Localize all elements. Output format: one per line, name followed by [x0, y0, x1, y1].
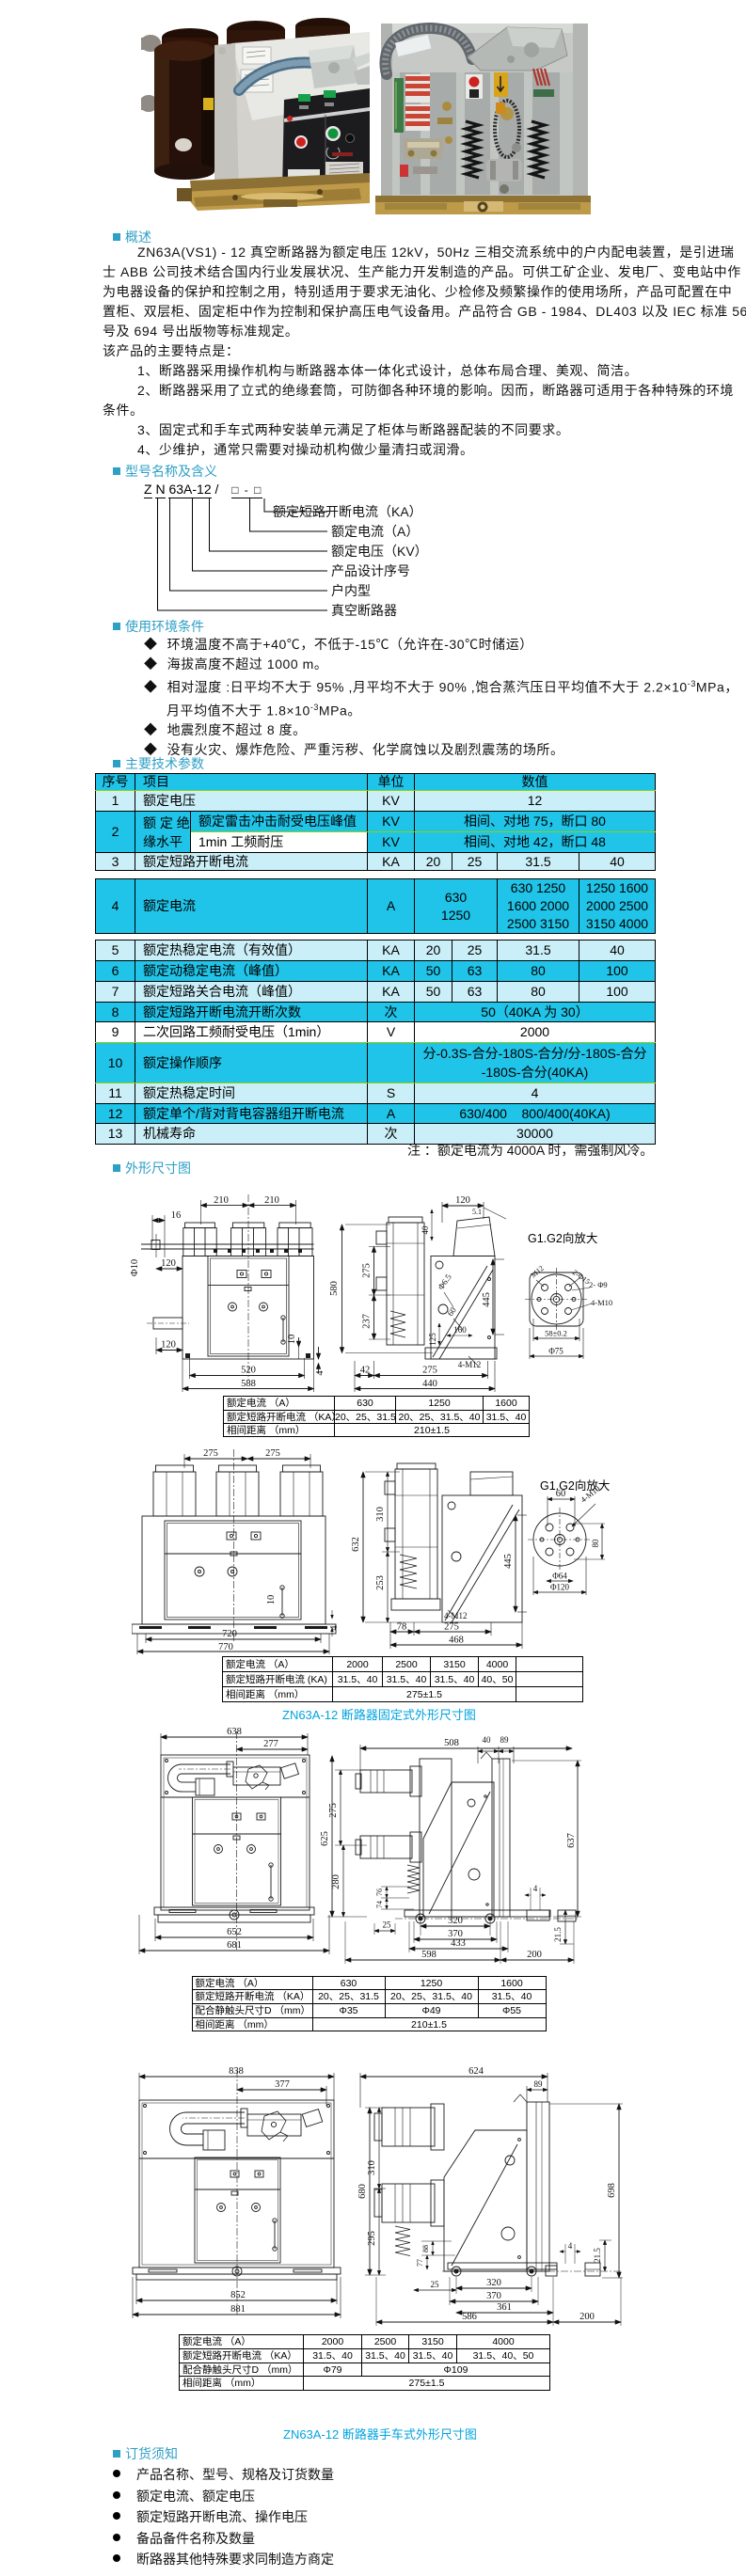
svg-text:445: 445 — [503, 1554, 514, 1569]
svg-text:295: 295 — [367, 2231, 377, 2246]
svg-text:520: 520 — [241, 1366, 256, 1376]
svg-text:Φ120: Φ120 — [550, 1583, 570, 1592]
svg-text:680: 680 — [357, 2184, 368, 2199]
svg-text:74: 74 — [375, 1901, 384, 1908]
svg-text:58±0.2: 58±0.2 — [545, 1329, 567, 1338]
svg-text:4-M12: 4-M12 — [444, 1611, 468, 1620]
svg-text:Φ64: Φ64 — [552, 1572, 567, 1581]
svg-text:838: 838 — [229, 2066, 244, 2077]
svg-text:200: 200 — [579, 2312, 595, 2322]
svg-text:200: 200 — [527, 1950, 542, 1960]
svg-text:588: 588 — [241, 1379, 256, 1389]
svg-text:89: 89 — [500, 1735, 510, 1745]
svg-text:310: 310 — [367, 2160, 377, 2175]
svg-text:275: 275 — [362, 1263, 373, 1278]
svg-text:320: 320 — [448, 1916, 463, 1926]
svg-text:120: 120 — [161, 1340, 176, 1351]
svg-text:580: 580 — [329, 1281, 340, 1296]
svg-text:253: 253 — [375, 1575, 386, 1590]
svg-text:277: 277 — [263, 1739, 278, 1749]
svg-text:120: 120 — [161, 1258, 176, 1269]
svg-text:280: 280 — [331, 1874, 341, 1889]
svg-text:638: 638 — [227, 1727, 242, 1737]
svg-text:625: 625 — [320, 1831, 330, 1846]
svg-text:433: 433 — [451, 1938, 466, 1949]
svg-text:598: 598 — [421, 1950, 436, 1960]
svg-text:89: 89 — [534, 2079, 544, 2089]
svg-text:2- Φ9: 2- Φ9 — [589, 1280, 608, 1289]
svg-text:440: 440 — [422, 1379, 437, 1389]
svg-text:210: 210 — [214, 1195, 229, 1206]
svg-text:852: 852 — [230, 2290, 246, 2300]
svg-text:468: 468 — [449, 1636, 464, 1646]
svg-text:10: 10 — [287, 1335, 297, 1345]
svg-text:25: 25 — [383, 1920, 392, 1930]
svg-text:42: 42 — [360, 1366, 371, 1376]
svg-text:5.1: 5.1 — [472, 1208, 482, 1216]
svg-text:310: 310 — [375, 1507, 386, 1522]
svg-text:4: 4 — [315, 1370, 325, 1376]
svg-text:4-M10: 4-M10 — [591, 1298, 612, 1307]
svg-text:275: 275 — [328, 1803, 339, 1818]
svg-text:637: 637 — [566, 1833, 577, 1848]
svg-text:160: 160 — [453, 1325, 467, 1335]
svg-text:4: 4 — [568, 2241, 573, 2251]
svg-text:76: 76 — [375, 1889, 384, 1896]
svg-text:698: 698 — [607, 2183, 617, 2198]
svg-text:652: 652 — [227, 1927, 242, 1937]
svg-text:624: 624 — [468, 2066, 484, 2077]
svg-text:21.5: 21.5 — [593, 2248, 602, 2263]
svg-text:80: 80 — [591, 1539, 600, 1548]
svg-text:M12: M12 — [530, 1264, 546, 1280]
svg-text:770: 770 — [218, 1642, 233, 1652]
svg-text:377: 377 — [275, 2079, 290, 2090]
svg-text:4: 4 — [533, 1884, 538, 1893]
svg-text:210: 210 — [264, 1195, 279, 1206]
svg-text:10: 10 — [266, 1595, 277, 1605]
svg-text:21.5: 21.5 — [553, 1927, 563, 1942]
svg-text:120: 120 — [455, 1195, 470, 1206]
svg-text:508: 508 — [444, 1738, 459, 1748]
svg-text:445: 445 — [482, 1292, 492, 1307]
svg-text:40: 40 — [483, 1735, 492, 1745]
svg-text:77: 77 — [416, 2259, 424, 2267]
svg-text:681: 681 — [227, 1940, 242, 1951]
svg-text:586: 586 — [462, 2312, 477, 2322]
svg-text:Φ10: Φ10 — [130, 1259, 140, 1276]
svg-text:881: 881 — [230, 2304, 246, 2315]
svg-text:275: 275 — [265, 1448, 280, 1459]
svg-text:275: 275 — [203, 1448, 218, 1459]
svg-text:720: 720 — [222, 1629, 237, 1639]
svg-text:275: 275 — [422, 1366, 437, 1376]
svg-text:25: 25 — [431, 2280, 440, 2289]
svg-text:125: 125 — [428, 1333, 437, 1346]
svg-text:4-M12: 4-M12 — [458, 1360, 482, 1369]
svg-text:370: 370 — [486, 2291, 501, 2301]
svg-text:320: 320 — [486, 2278, 501, 2288]
svg-text:88: 88 — [421, 2245, 430, 2252]
svg-text:Φ6.5: Φ6.5 — [436, 1272, 453, 1291]
svg-text:Φ75: Φ75 — [548, 1347, 563, 1356]
svg-text:237: 237 — [362, 1314, 373, 1329]
svg-text:632: 632 — [351, 1537, 361, 1552]
svg-text:4: 4 — [329, 1625, 340, 1631]
svg-text:40: 40 — [421, 1225, 430, 1235]
svg-text:16: 16 — [171, 1210, 182, 1221]
svg-text:78: 78 — [397, 1622, 407, 1633]
svg-text:361: 361 — [497, 2302, 512, 2313]
svg-text:275: 275 — [444, 1622, 459, 1633]
